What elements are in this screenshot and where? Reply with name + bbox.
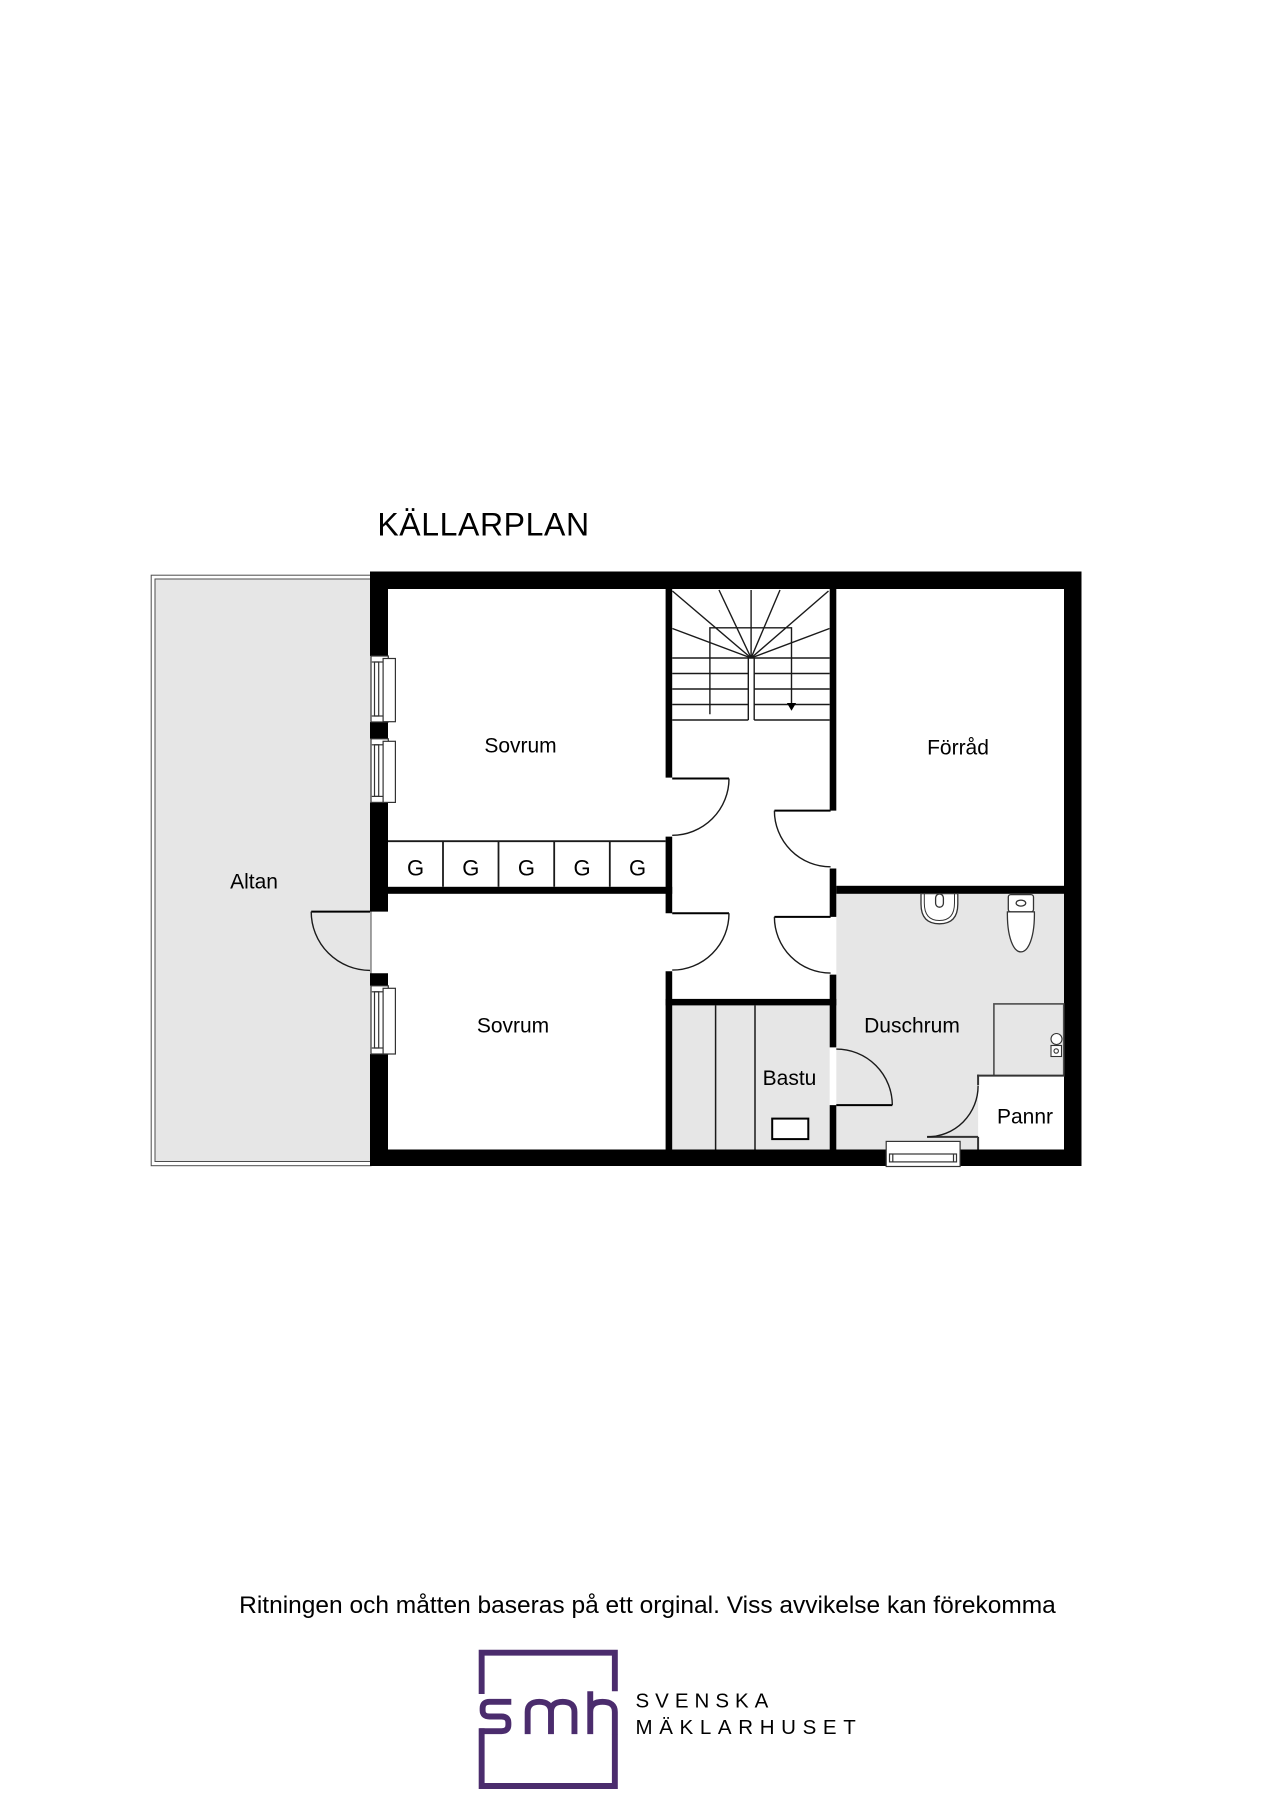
- svg-text:Ritningen och måtten baseras p: Ritningen och måtten baseras på ett orgi…: [239, 1592, 1056, 1619]
- svg-text:G: G: [462, 856, 479, 881]
- svg-text:G: G: [573, 856, 590, 881]
- svg-text:G: G: [629, 856, 646, 881]
- svg-text:MÄKLARHUSET: MÄKLARHUSET: [636, 1716, 863, 1739]
- svg-text:Duschrum: Duschrum: [864, 1015, 960, 1038]
- svg-text:Förråd: Förråd: [927, 737, 989, 760]
- svg-text:G: G: [518, 856, 535, 881]
- svg-text:KÄLLARPLAN: KÄLLARPLAN: [377, 507, 589, 543]
- svg-text:Pannr: Pannr: [997, 1106, 1053, 1129]
- svg-text:Altan: Altan: [230, 871, 278, 894]
- svg-text:Sovrum: Sovrum: [477, 1015, 549, 1038]
- svg-text:SVENSKA: SVENSKA: [636, 1690, 775, 1713]
- svg-text:Bastu: Bastu: [763, 1067, 817, 1090]
- svg-text:G: G: [407, 856, 424, 881]
- svg-text:Sovrum: Sovrum: [484, 735, 556, 758]
